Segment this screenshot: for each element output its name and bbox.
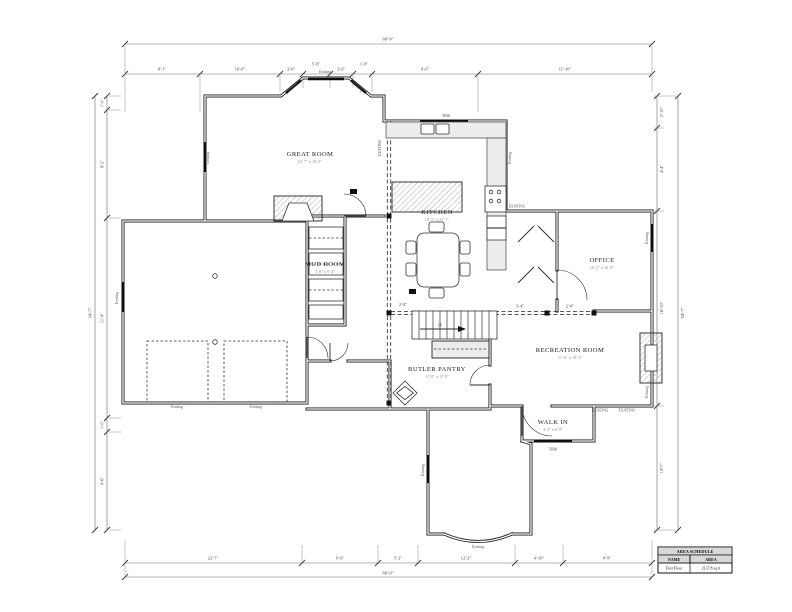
dim-top-seg: 10'-8"	[235, 67, 246, 72]
room-label-butler-pantry: BUTLER PANTRY	[408, 366, 466, 373]
kitchen-sink	[421, 124, 434, 134]
schedule-row-name: First Floor	[666, 567, 683, 571]
room-label-mud-room: MUD ROOM	[305, 261, 345, 268]
stair-landing	[432, 341, 489, 358]
existing-note: EXISTING	[378, 139, 382, 156]
dim-bottom-seg: 9'-6"	[336, 556, 345, 561]
room-size-butler-pantry: 11' 8" x 11' 8"	[425, 374, 449, 379]
existing-note: EXISTING	[619, 409, 636, 413]
existing-note: Existing	[171, 405, 183, 409]
existing-note: Existing	[645, 386, 649, 398]
schedule-title: AREA SCHEDULE	[677, 549, 714, 554]
dim-right-overall: 34'-7"	[680, 307, 685, 318]
existing-note: EXISTING	[509, 205, 526, 209]
dim-top-seg: 11'-10"	[559, 67, 572, 72]
existing-note: Existing	[286, 82, 298, 93]
rec-room-firebox	[645, 345, 657, 371]
dining-chair	[460, 263, 470, 276]
schedule-col-name: NAME	[668, 557, 681, 562]
dim-top-seg: 1'-8"	[360, 62, 369, 67]
room-label-walk-in: WALK IN	[538, 419, 568, 426]
post-column	[387, 401, 392, 406]
garage-bay-outline	[224, 341, 287, 402]
range-burner	[497, 199, 501, 203]
dimension-chains: 60'-9" 8'-1" 10'-8" 3'-0" 5'-8" 3'-0" 1'…	[88, 37, 686, 581]
window-tag: 5036	[442, 114, 450, 118]
window-tag: 5036	[549, 448, 557, 452]
dim-top-overall: 60'-9"	[382, 37, 393, 42]
dim-bottom-seg: 4'-10"	[534, 556, 545, 561]
dim-right-seg: 16'-10"	[659, 301, 664, 314]
dim-beam-a: 2'-8"	[399, 302, 408, 307]
post-round	[213, 274, 218, 279]
dim-left-overall: 34'-7"	[88, 307, 93, 318]
existing-note: Existing	[206, 152, 210, 164]
dim-left-seg: 1'-0"	[100, 99, 105, 108]
dim-right-seg: 2'-10"	[659, 107, 664, 118]
range-burner	[497, 190, 501, 194]
room-label-recreation-room: RECREATION ROOM	[536, 347, 604, 354]
area-schedule-table: AREA SCHEDULE NAME AREA First Floor 2137…	[658, 547, 732, 573]
dim-beam-b: 3'-4"	[516, 304, 525, 309]
bench	[309, 305, 343, 319]
existing-notes: Existing Existing Existing Existing Exis…	[115, 70, 649, 549]
room-size-office: 10' 2" x 12' 8"	[590, 265, 615, 270]
garage-fixtures	[147, 274, 287, 402]
dim-right-seg: 10'-7"	[659, 463, 664, 474]
floor-plan-drawing: 60'-9" 8'-1" 10'-8" 3'-0" 5'-8" 3'-0" 1'…	[0, 0, 792, 612]
room-label-great-room: GREAT ROOM	[287, 151, 334, 158]
existing-note: Existing	[472, 545, 484, 549]
dim-bottom-seg: 5'-2"	[394, 556, 403, 561]
schedule-row-area: 2137.8 sq ft	[702, 567, 721, 571]
dim-top-seg: 5'-8"	[312, 62, 321, 67]
existing-note: Existing	[115, 292, 119, 304]
room-size-walk-in: 4' 2" x 6' 8"	[543, 427, 563, 432]
room-size-recreation-room: 11' 6" x 18' 2"	[558, 355, 582, 360]
dining-chair	[406, 263, 416, 276]
floor-outlet-marker	[350, 189, 357, 194]
existing-note: Existing	[352, 82, 364, 93]
existing-note: Existing	[250, 405, 262, 409]
kitchen-sink	[436, 124, 449, 134]
dining-chair	[406, 241, 416, 254]
room-label-kitchen: KITCHEN	[421, 209, 453, 216]
dim-bottom-seg: 8'-9"	[603, 556, 612, 561]
stair-up-label: UP	[438, 324, 443, 328]
floor-plan-sheet: 60'-9" 8'-1" 10'-8" 3'-0" 5'-8" 3'-0" 1'…	[0, 0, 792, 612]
range-burner	[489, 199, 493, 203]
post-round	[213, 340, 218, 345]
existing-note: Existing	[508, 152, 512, 164]
existing-note: Existing	[421, 464, 425, 476]
existing-note: Existing	[645, 232, 649, 244]
dim-top-seg: 3'-0"	[287, 67, 296, 72]
dining-chair	[429, 222, 444, 232]
dim-bottom-overall: 60'-9"	[382, 571, 393, 576]
post-column	[387, 214, 392, 219]
dining-chair	[460, 241, 470, 254]
kitchen-island	[392, 182, 462, 212]
dim-left-seg: 11'-4"	[100, 313, 105, 323]
room-size-mud-room: 3' 8" x 6' 4"	[315, 269, 335, 274]
dim-bottom-seg: 12'-2"	[461, 556, 472, 561]
dining-chair	[429, 288, 444, 298]
dim-top-seg: 3'-0"	[337, 67, 346, 72]
dim-beam-c: 2'-8"	[566, 304, 575, 309]
floor-outlet-marker	[409, 289, 416, 294]
post-column	[592, 311, 597, 316]
dim-top-seg: 9'-6"	[421, 67, 430, 72]
dim-bottom-seg: 22'-7"	[208, 556, 219, 561]
dining-table	[417, 233, 459, 287]
stair-run	[412, 311, 497, 339]
post-column	[545, 311, 550, 316]
dim-left-seg: 9'-6"	[100, 477, 105, 486]
schedule-col-area: AREA	[705, 557, 717, 562]
kitchen-range	[485, 186, 506, 212]
room-size-great-room: 21' 7" x 16' 8"	[298, 159, 323, 164]
room-size-kitchen: 13' 5" x 21' 7"	[425, 217, 450, 222]
existing-note: Existing	[319, 70, 331, 74]
dim-left-seg: 1'-0"	[100, 421, 105, 430]
dim-right-seg: 4'-4"	[659, 165, 664, 174]
stairs: UP	[412, 311, 497, 358]
existing-note: EXISTING	[592, 409, 609, 413]
room-label-office: OFFICE	[589, 257, 614, 264]
post-column	[387, 311, 392, 316]
dim-top-seg: 8'-1"	[158, 67, 167, 72]
pantry-fixtures	[393, 381, 417, 405]
garage-bay-outline	[147, 341, 208, 402]
dim-left-seg: 8'-2"	[100, 160, 105, 169]
range-burner	[489, 190, 493, 194]
